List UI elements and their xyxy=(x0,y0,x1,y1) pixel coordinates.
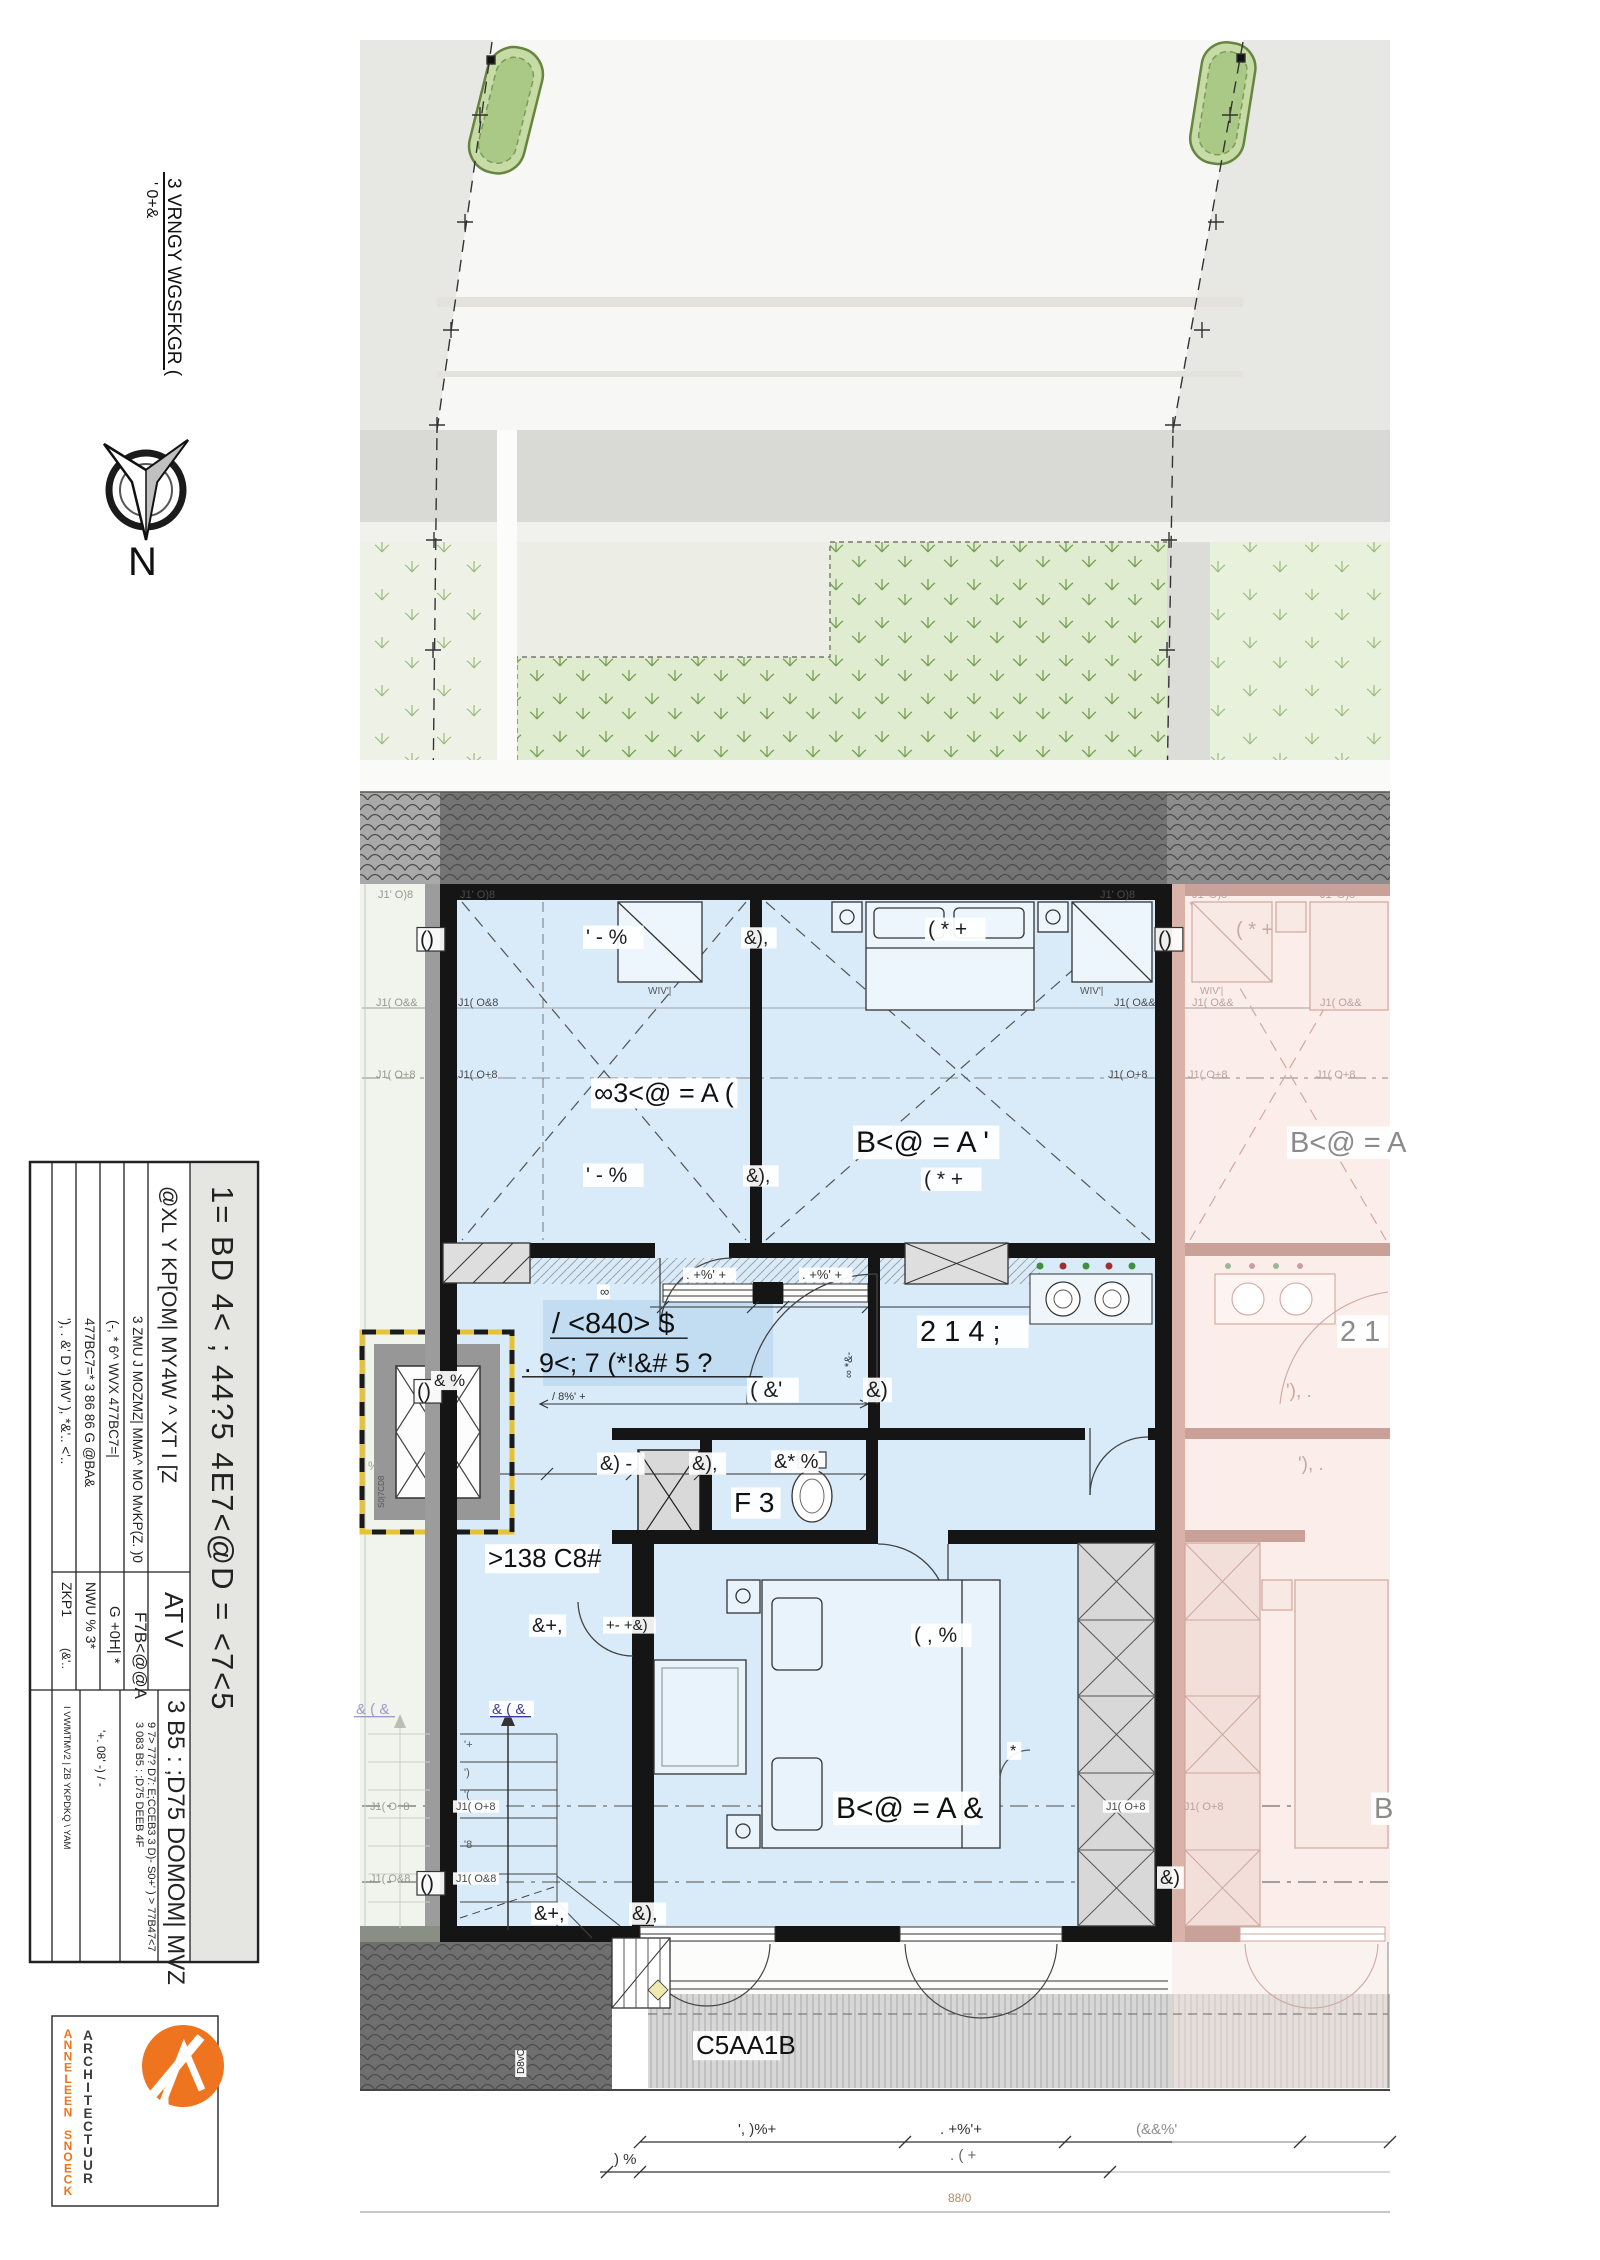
svg-text:88/0: 88/0 xyxy=(948,2191,972,2205)
svg-text:B<@ = A: B<@ = A xyxy=(1290,1127,1407,1159)
svg-text:J1' O)8: J1' O)8 xyxy=(460,889,495,901)
roof-band xyxy=(360,760,1390,884)
site-plan xyxy=(360,39,1390,792)
dim-label: . +%'+ xyxy=(940,2121,982,2138)
svg-text:&),: &), xyxy=(744,928,768,949)
svg-text:/ <840> $: / <840> $ xyxy=(552,1308,675,1340)
closet-label: WIV'| xyxy=(648,986,671,997)
svg-text:S0|7CD8: S0|7CD8 xyxy=(377,1475,386,1508)
svg-text:( * +: ( * + xyxy=(928,918,967,941)
north-arrow: N xyxy=(104,440,188,584)
tb-note1: 3 083 B5 : ;D75 DEEB 4F xyxy=(133,1722,145,1848)
washbasin xyxy=(1046,1282,1080,1316)
wall-label: J1( O+8 xyxy=(1316,1069,1355,1081)
svg-text:'+: '+ xyxy=(464,1739,473,1751)
wall-marker: ∞ xyxy=(597,1284,610,1299)
wall-label: J1( O+8 xyxy=(376,1069,415,1081)
balcony xyxy=(360,1927,1390,2090)
dim-label: &+, xyxy=(531,1902,568,1925)
wall-label: J1( O+8 xyxy=(458,1069,497,1081)
wall-label: J1( O+8 xyxy=(1103,1800,1149,1813)
wall-label: % xyxy=(368,1459,379,1473)
tb-row5-label: '), . &' D ') MV' ), *&'.. <'.. xyxy=(58,1318,73,1464)
nightstand xyxy=(1038,902,1068,932)
svg-text:( , %: ( , % xyxy=(914,1624,957,1647)
svg-text:. ( +: . ( + xyxy=(950,2147,976,2164)
svg-text:'), .: '), . xyxy=(1298,1454,1324,1475)
drawing-title: 3 B5 : ;D75 DOMOM| MVZ xyxy=(162,1700,189,1985)
wall-label: J1( O+8 xyxy=(1184,1801,1223,1813)
svg-text:( * +: ( * + xyxy=(924,1168,963,1191)
svg-text:∞: ∞ xyxy=(600,1284,609,1299)
svg-text:J1( O&&: J1( O&& xyxy=(1320,997,1362,1009)
svg-text:∞ *&-: ∞ *&- xyxy=(843,1351,855,1378)
wall-label: J1' O)8 xyxy=(1100,889,1135,901)
svg-text:J1( O&8: J1( O&8 xyxy=(456,1873,496,1885)
dim-label: ( , % xyxy=(911,1624,972,1648)
terrace-label: D8vC xyxy=(515,2049,527,2077)
tread-label: '+ xyxy=(464,1739,473,1751)
wall-label: J1( O&8 xyxy=(458,997,498,1009)
svg-text:J1( O+8: J1( O+8 xyxy=(456,1801,495,1813)
dim-label: &), xyxy=(741,927,777,949)
svg-text:( &': ( &' xyxy=(750,1377,782,1402)
shaft-label: S0|7CD8 xyxy=(377,1475,386,1508)
tread-label: '8 xyxy=(464,1839,472,1851)
svg-text:'), .: '), . xyxy=(1286,1381,1312,1402)
svg-text:F 3: F 3 xyxy=(734,1487,774,1518)
svg-text:&* %: &* % xyxy=(774,1451,819,1473)
wall-label: J1( O&8 xyxy=(370,1873,410,1885)
project-title: 1= BD 4< ; 44?5 4E7<@D = <7<5 xyxy=(205,1186,240,1712)
wall-label: J1( O+8 xyxy=(453,1800,499,1813)
svg-text:B<@ = A &: B<@ = A & xyxy=(836,1792,983,1825)
svg-text:& ( &: & ( & xyxy=(356,1701,389,1718)
svg-text:'8: '8 xyxy=(464,1839,472,1851)
svg-text:/ 8%' +: / 8%' + xyxy=(552,1391,586,1403)
dim-label: ( * + xyxy=(1236,919,1273,941)
svg-text:&): &) xyxy=(1160,1867,1180,1889)
wall-label: J1( O&8 xyxy=(453,1872,499,1885)
tb-row2-label: 3 ZMU J MOZMZ| MMA^ MO MvKP(Z. )0 xyxy=(130,1316,145,1563)
dimension-lines xyxy=(360,2136,1396,2212)
tb-row1-value: AT V xyxy=(159,1592,189,1648)
svg-text:(): () xyxy=(420,928,434,951)
svg-text:>138 C8#: >138 C8# xyxy=(488,1543,602,1573)
dim-label: ' - % xyxy=(583,926,644,950)
svg-text:'(: '( xyxy=(464,1789,470,1801)
wall-label: J1( O+8 xyxy=(1108,1069,1147,1081)
nightstand xyxy=(727,1815,760,1848)
closet-label: WIV'| xyxy=(1080,986,1103,997)
wall-label: J1( O&& xyxy=(1192,997,1234,1009)
dim-label: &* % xyxy=(771,1450,819,1473)
svg-text:D8vC: D8vC xyxy=(516,2049,527,2074)
svg-text:J1( O+8: J1( O+8 xyxy=(376,1069,415,1081)
tb-row4-label: 477BC7=* 3 86 86 G @BA& xyxy=(82,1318,97,1487)
dim-label: '), . xyxy=(1298,1454,1324,1475)
svg-text:C5AA1B: C5AA1B xyxy=(696,2030,796,2060)
tb-row5-value: ZKP1 xyxy=(59,1582,75,1617)
dim-label: ( * + xyxy=(925,918,986,942)
washbasin xyxy=(1095,1282,1129,1316)
toilet xyxy=(792,1470,832,1522)
svg-text:&),: &), xyxy=(746,1166,770,1187)
room-label: 2 1 xyxy=(1337,1315,1388,1348)
svg-text:∞3<@ = A (: ∞3<@ = A ( xyxy=(594,1078,734,1108)
dim-label: ', )%+ xyxy=(738,2121,777,2138)
svg-text:*: * xyxy=(1010,1743,1016,1760)
svg-text:B: B xyxy=(1374,1793,1393,1825)
svg-text:J1' O)8: J1' O)8 xyxy=(378,889,413,901)
dim-label: ) % xyxy=(614,2151,637,2168)
dim-label: '), . xyxy=(1286,1381,1312,1402)
svg-text:&) -: &) - xyxy=(600,1453,632,1475)
svg-text:(&&%': (&&%' xyxy=(1136,2121,1177,2138)
svg-text:J1( O+8: J1( O+8 xyxy=(1188,1069,1227,1081)
svg-text:J1' O)8: J1' O)8 xyxy=(1192,889,1227,901)
stair-label: & ( & xyxy=(489,1701,534,1718)
dim-label: &), xyxy=(743,1165,779,1187)
svg-text:&): &) xyxy=(866,1377,888,1402)
svg-text:&+,: &+, xyxy=(534,1903,565,1925)
room-label: ∞3<@ = A ( xyxy=(591,1078,737,1108)
svg-text:&),: &), xyxy=(632,1903,658,1925)
dim-label: 88/0 xyxy=(948,2191,972,2205)
dim-label: ∞ *&- xyxy=(843,1351,855,1378)
svg-text:) %: ) % xyxy=(614,2151,637,2168)
svg-text:J1( O&8: J1( O&8 xyxy=(370,1873,410,1885)
svg-text:B<@ = A ': B<@ = A ' xyxy=(856,1126,989,1159)
svg-text:J1( O+8: J1( O+8 xyxy=(370,1801,409,1813)
dim-label: (&&%' xyxy=(1136,2121,1177,2138)
wall-label: J1( O+8 xyxy=(1188,1069,1227,1081)
room-label: >138 C8# xyxy=(485,1543,602,1573)
svg-text:. +%'+: . +%'+ xyxy=(940,2121,982,2138)
room-label: B xyxy=(1371,1792,1393,1825)
dim-label: &), xyxy=(629,1902,666,1925)
dim-label: . +%' + xyxy=(683,1267,736,1282)
svg-text:WIV'|: WIV'| xyxy=(1200,986,1223,997)
room-label: B<@ = A & xyxy=(833,1792,983,1826)
dim-label: &) xyxy=(1157,1866,1184,1889)
dim-label: . ( + xyxy=(950,2147,976,2164)
wall-label: J1' O)8 xyxy=(378,889,413,901)
svg-text:J1( O&&: J1( O&& xyxy=(1192,997,1234,1009)
sheet-note: 3 VRNGY WGSFKGR ( ' 0+& xyxy=(143,172,184,377)
svg-text:WIV'|: WIV'| xyxy=(1080,986,1103,997)
dim-label: ( &' xyxy=(747,1377,799,1402)
floor-plan-sheet: N 3 VRNGY WGSFKGR ( ' 0+& 1= BD 4< ; 44?… xyxy=(0,0,1600,2260)
tb-row1-label: @XL Y KP[OM| MY4W ^ XT I [Z xyxy=(157,1186,180,1483)
dim-label: * xyxy=(1007,1742,1021,1760)
wall-marker: () xyxy=(1155,928,1183,952)
dim-label: &) - xyxy=(597,1452,645,1475)
tb-note3: '+. 08' -) / - xyxy=(94,1730,108,1787)
room-label: / <840> $ xyxy=(550,1308,688,1340)
dim-label: &) xyxy=(863,1377,892,1402)
svg-text:J1( O&8: J1( O&8 xyxy=(458,997,498,1009)
svg-text:'): ') xyxy=(464,1767,470,1779)
tb-row2-value: F7B<@@A xyxy=(131,1612,150,1700)
tb-note2: 9 7> 77? D7: E;CCEB3 3 D)- S0+' ) > 77B4… xyxy=(145,1722,157,1952)
dresser xyxy=(654,1660,746,1774)
sheet-note-line1: 3 VRNGY WGSFKGR ( xyxy=(163,178,184,377)
room-label: 2 1 4 ; xyxy=(917,1315,1029,1348)
room-label: B<@ = A xyxy=(1287,1126,1407,1159)
nightstand xyxy=(832,902,862,932)
wall-label: J1' O)8 xyxy=(1192,889,1227,901)
svg-text:. 9<; 7 (*!&# 5 ?: . 9<; 7 (*!&# 5 ? xyxy=(524,1348,712,1378)
svg-text:%: % xyxy=(368,1459,379,1473)
closet-label: WIV'| xyxy=(1200,986,1223,997)
dim-label: +- +&) xyxy=(603,1617,656,1634)
dim-label: ' - % xyxy=(583,1164,644,1188)
tread-label: '( xyxy=(464,1789,470,1801)
svg-text:WIV'|: WIV'| xyxy=(648,986,671,997)
wall-label: J1' O)8 xyxy=(460,889,495,901)
svg-text:& %: & % xyxy=(434,1371,465,1390)
room-label: B<@ = A ' xyxy=(853,1126,999,1160)
svg-text:. +%' +: . +%' + xyxy=(686,1267,726,1282)
logo-architect-text: ANNELEEN SNOECK xyxy=(63,2027,72,2198)
room-label: F 3 xyxy=(731,1487,781,1519)
north-label: N xyxy=(128,540,157,584)
svg-text:J1( O+8: J1( O+8 xyxy=(1184,1801,1223,1813)
wall-label: J1( O&& xyxy=(1114,997,1156,1009)
logo-studio-text: ARCHITECTUUR xyxy=(83,2028,93,2186)
svg-text:J1( O&&: J1( O&& xyxy=(376,997,418,1009)
svg-text:J1( O+8: J1( O+8 xyxy=(1106,1801,1145,1813)
tb-row3-label: (-, * 6^ WVX 477BC7=| xyxy=(106,1320,121,1458)
dim-label: ( * + xyxy=(921,1168,982,1192)
svg-text:J1( O+8: J1( O+8 xyxy=(1108,1069,1147,1081)
svg-text:+- +&): +- +&) xyxy=(606,1617,648,1634)
sheet-note-line2: ' 0+& xyxy=(143,182,160,219)
svg-text:(): () xyxy=(1158,928,1172,951)
dim-label: . +%' + xyxy=(799,1267,852,1282)
shaft-label: & % xyxy=(431,1371,465,1390)
svg-text:J1' O)8: J1' O)8 xyxy=(1100,889,1135,901)
svg-text:. +%' +: . +%' + xyxy=(802,1267,842,1282)
wall-label: J1( O&& xyxy=(376,997,418,1009)
wall-label: J1( O&& xyxy=(1320,997,1362,1009)
svg-text:2 1: 2 1 xyxy=(1340,1316,1380,1348)
svg-text:J1( O&&: J1( O&& xyxy=(1114,997,1156,1009)
wall-label: J1' O)8 xyxy=(1320,889,1355,901)
wall-marker: () xyxy=(417,928,445,952)
hall-small: / 8%' + xyxy=(552,1391,586,1403)
tb-row3-value: G +0H| * xyxy=(106,1606,123,1664)
svg-text:2 1 4 ;: 2 1 4 ; xyxy=(920,1316,1001,1348)
nightstand xyxy=(727,1580,760,1613)
stair-label: & ( & xyxy=(354,1701,395,1718)
tread-label: ') xyxy=(464,1767,470,1779)
svg-text:(): () xyxy=(417,1380,431,1403)
svg-text:(): () xyxy=(420,1872,434,1895)
svg-text:( * +: ( * + xyxy=(1236,919,1273,941)
svg-text:' - %: ' - % xyxy=(586,926,627,949)
title-block: 1= BD 4< ; 44?5 4E7<@D = <7<5 @XL Y KP[O… xyxy=(30,1162,258,1985)
svg-text:&),: &), xyxy=(692,1453,718,1475)
architect-logo: ARCHITECTUUR ANNELEEN SNOECK xyxy=(52,2016,224,2206)
tb-row4-value: NWU % 3* xyxy=(83,1582,99,1649)
dim-label: &+, xyxy=(529,1614,566,1637)
terrace-label: C5AA1B xyxy=(693,2030,796,2060)
wall-marker: () xyxy=(417,1872,445,1896)
svg-text:J1( O+8: J1( O+8 xyxy=(458,1069,497,1081)
tb-row5-value2: (&'.. xyxy=(59,1648,73,1669)
svg-text:' - %: ' - % xyxy=(586,1164,627,1187)
svg-text:J1' O)8: J1' O)8 xyxy=(1320,889,1355,901)
dim-label: &), xyxy=(689,1452,726,1475)
svg-text:J1( O+8: J1( O+8 xyxy=(1316,1069,1355,1081)
bottom-steps xyxy=(612,1938,670,2008)
wall-label: J1( O+8 xyxy=(370,1801,409,1813)
tb-side-note: I VWMTMV2 | ZB YKPDKQ \ YAM xyxy=(61,1706,72,1849)
svg-text:', )%+: ', )%+ xyxy=(738,2121,777,2138)
svg-text:& ( &: & ( & xyxy=(492,1701,525,1718)
svg-text:&+,: &+, xyxy=(532,1615,563,1637)
